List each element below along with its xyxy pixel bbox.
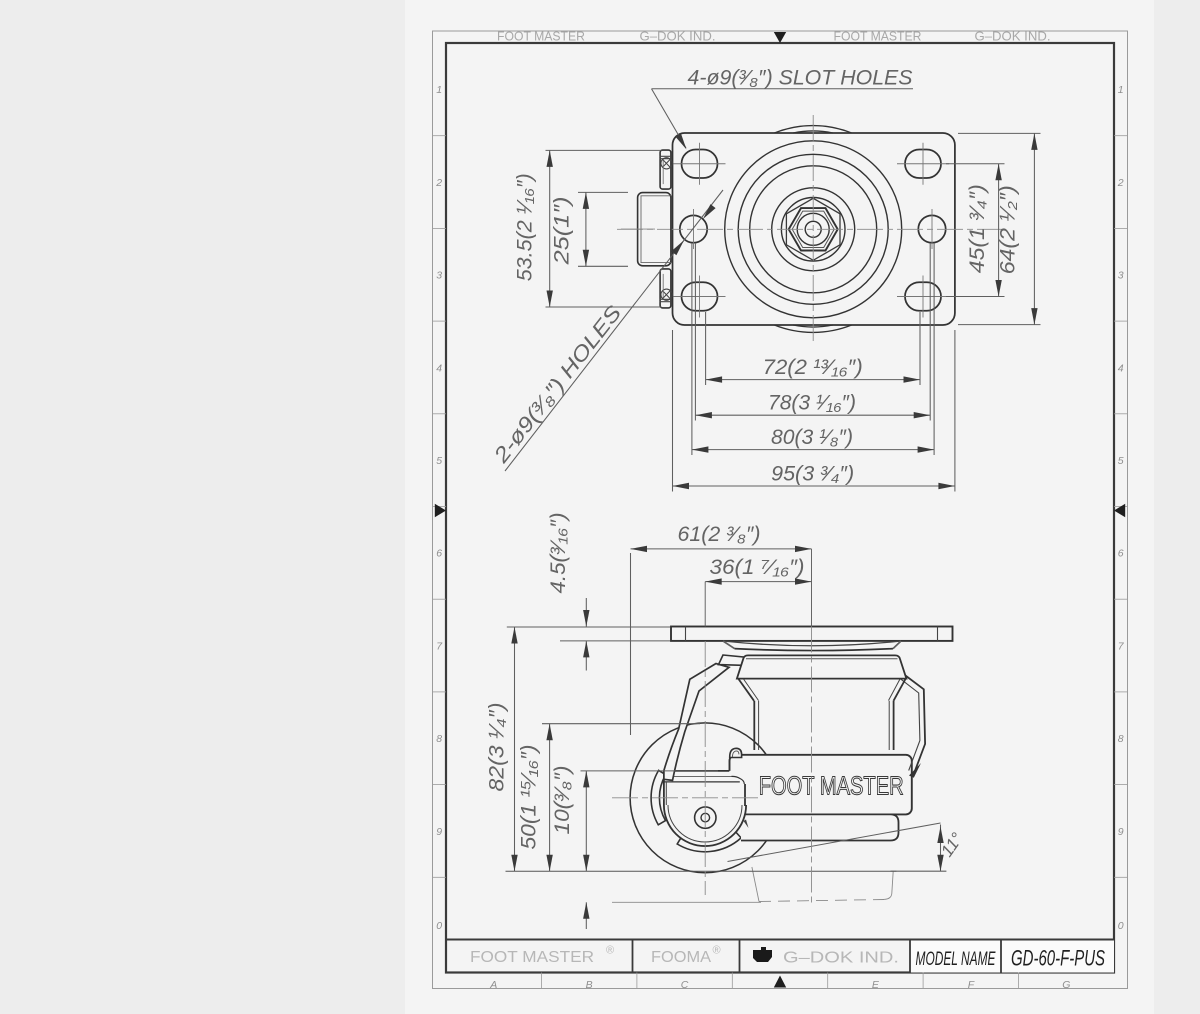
svg-text:45(1 ³⁄₄″): 45(1 ³⁄₄″) <box>966 184 989 273</box>
svg-text:GD-60-F-PUS: GD-60-F-PUS <box>1011 946 1105 971</box>
svg-text:4: 4 <box>436 362 442 374</box>
svg-text:F: F <box>968 979 975 991</box>
svg-text:G–DOK IND.: G–DOK IND. <box>783 950 899 967</box>
svg-text:FOOT MASTER: FOOT MASTER <box>834 30 922 44</box>
svg-text:6: 6 <box>1118 548 1124 560</box>
svg-text:G–DOK IND.: G–DOK IND. <box>640 30 716 44</box>
svg-text:9: 9 <box>436 826 442 838</box>
svg-text:FOOT MASTER: FOOT MASTER <box>470 949 594 966</box>
svg-text:FOOMA: FOOMA <box>651 949 712 966</box>
svg-text:8: 8 <box>436 733 442 745</box>
svg-text:C: C <box>681 979 689 991</box>
svg-text:E: E <box>872 979 880 991</box>
svg-text:1: 1 <box>436 84 442 96</box>
svg-text:25(1″): 25(1″) <box>550 196 573 265</box>
svg-text:61(2 ³⁄₈″): 61(2 ³⁄₈″) <box>678 523 761 546</box>
svg-text:FOOT MASTER: FOOT MASTER <box>497 30 585 44</box>
svg-text:80(3 ¹⁄₈″): 80(3 ¹⁄₈″) <box>771 426 853 449</box>
svg-text:2: 2 <box>435 177 442 189</box>
svg-text:0: 0 <box>1118 920 1124 932</box>
svg-text:G–DOK IND.: G–DOK IND. <box>975 30 1051 44</box>
svg-text:9: 9 <box>1118 826 1124 838</box>
svg-text:36(1 ⁷⁄₁₆″): 36(1 ⁷⁄₁₆″) <box>710 556 805 579</box>
svg-text:3: 3 <box>436 270 442 282</box>
svg-text:72(2 ¹³⁄₁₆″): 72(2 ¹³⁄₁₆″) <box>763 356 863 379</box>
svg-text:4-ø9(³⁄₈″) SLOT HOLES: 4-ø9(³⁄₈″) SLOT HOLES <box>688 67 913 90</box>
svg-text:®: ® <box>606 945 614 957</box>
svg-text:A: A <box>489 979 497 991</box>
svg-text:95(3 ³⁄₄″): 95(3 ³⁄₄″) <box>771 463 854 486</box>
svg-text:5: 5 <box>1118 455 1124 467</box>
svg-text:FOOT MASTER: FOOT MASTER <box>759 771 904 801</box>
svg-text:64(2 ¹⁄₂″): 64(2 ¹⁄₂″) <box>996 185 1019 274</box>
svg-text:G: G <box>1062 979 1070 991</box>
svg-text:50(1 ¹⁵⁄₁₆″): 50(1 ¹⁵⁄₁₆″) <box>518 745 541 850</box>
svg-text:4: 4 <box>1118 362 1124 374</box>
svg-text:2: 2 <box>1117 177 1124 189</box>
svg-text:1: 1 <box>1118 84 1124 96</box>
svg-text:82(3 ¹⁄₄″): 82(3 ¹⁄₄″) <box>486 703 509 792</box>
svg-text:3: 3 <box>1118 270 1124 282</box>
svg-text:6: 6 <box>436 548 442 560</box>
svg-text:®: ® <box>712 945 720 957</box>
svg-text:4.5(³⁄₁₆″): 4.5(³⁄₁₆″) <box>547 513 570 594</box>
svg-text:8: 8 <box>1118 733 1124 745</box>
svg-text:MODEL NAME: MODEL NAME <box>916 949 996 970</box>
svg-text:5: 5 <box>436 455 442 467</box>
svg-text:78(3 ¹⁄₁₆″): 78(3 ¹⁄₁₆″) <box>768 392 856 415</box>
svg-text:10(³⁄₈″): 10(³⁄₈″) <box>551 766 574 835</box>
svg-text:53.5(2 ¹⁄₁₆″): 53.5(2 ¹⁄₁₆″) <box>514 173 537 281</box>
svg-text:0: 0 <box>436 920 442 932</box>
svg-text:B: B <box>586 979 593 991</box>
